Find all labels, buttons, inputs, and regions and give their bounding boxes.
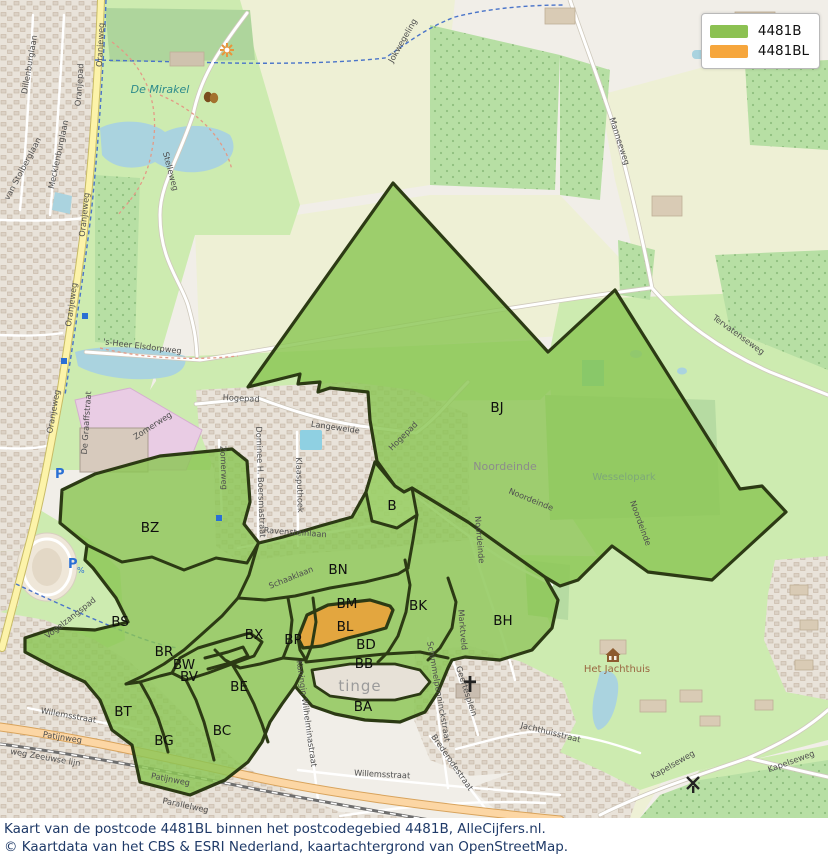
postcode-area-label-BG: BG bbox=[154, 733, 174, 749]
map-legend: 4481B4481BL bbox=[701, 13, 820, 69]
postcode-area-label-BD: BD bbox=[356, 637, 376, 653]
legend-label: 4481B bbox=[758, 23, 802, 39]
postcode-area-label-BS: BS bbox=[111, 614, 129, 630]
bus-stop-icon bbox=[61, 358, 67, 364]
postcode-area-label-BL: BL bbox=[337, 619, 354, 635]
postcode-area-label-BZ: BZ bbox=[141, 520, 160, 536]
street-label: Zomerweg bbox=[218, 446, 230, 490]
postcode-area-label-BR: BR bbox=[155, 644, 174, 660]
legend-swatch-icon bbox=[710, 45, 748, 58]
street-label: Klaasputhoek bbox=[294, 457, 306, 513]
theater-masks-icon bbox=[204, 92, 218, 103]
bus-stop-icon bbox=[82, 313, 88, 319]
legend-row: 4481BL bbox=[710, 41, 809, 61]
postcode-area-label-BE: BE bbox=[230, 679, 248, 695]
postcode-area-label-BN: BN bbox=[328, 562, 347, 578]
caption-line-1: Kaart van de postcode 4481BL binnen het … bbox=[4, 820, 828, 838]
postcode-area-label-BV: BV bbox=[180, 669, 199, 685]
legend-row: 4481B bbox=[710, 21, 809, 41]
map-image: P P % bbox=[0, 0, 828, 818]
attraction-icon bbox=[220, 43, 234, 57]
postcode-area-label-B: B bbox=[387, 498, 396, 514]
postcode-area-label-BJ: BJ bbox=[490, 400, 503, 416]
postcode-area-label-BK: BK bbox=[409, 598, 428, 614]
map-caption: Kaart van de postcode 4481BL binnen het … bbox=[0, 818, 828, 861]
legend-swatch-icon bbox=[710, 25, 748, 38]
postcode-area-label-BM: BM bbox=[337, 596, 358, 612]
street-label: Hogepad bbox=[223, 392, 260, 404]
postcode-area-label-BA: BA bbox=[354, 699, 373, 715]
place-label: Noordeinde bbox=[473, 460, 537, 473]
postcode-area-label-BT: BT bbox=[114, 704, 132, 720]
place-label: tinge bbox=[338, 677, 381, 695]
place-label: Het Jachthuis bbox=[584, 664, 650, 675]
caption-line-2: © Kaartdata van het CBS & ESRI Nederland… bbox=[4, 838, 828, 856]
postcode-area-label-BX: BX bbox=[245, 627, 264, 643]
postcode-area-label-BP: BP bbox=[284, 632, 301, 648]
postcode-map-page: P P % bbox=[0, 0, 828, 861]
postcode-area-label-BB: BB bbox=[355, 656, 374, 672]
place-label: Wesselopark bbox=[592, 472, 656, 483]
place-label: De Mirakel bbox=[131, 83, 190, 96]
bus-stop-icon bbox=[216, 515, 222, 521]
legend-label: 4481BL bbox=[758, 43, 809, 59]
map-canvas: P P % bbox=[0, 0, 828, 818]
postcode-area-label-BC: BC bbox=[213, 723, 231, 739]
postcode-area-label-BH: BH bbox=[493, 613, 512, 629]
parking-icon bbox=[55, 467, 65, 482]
